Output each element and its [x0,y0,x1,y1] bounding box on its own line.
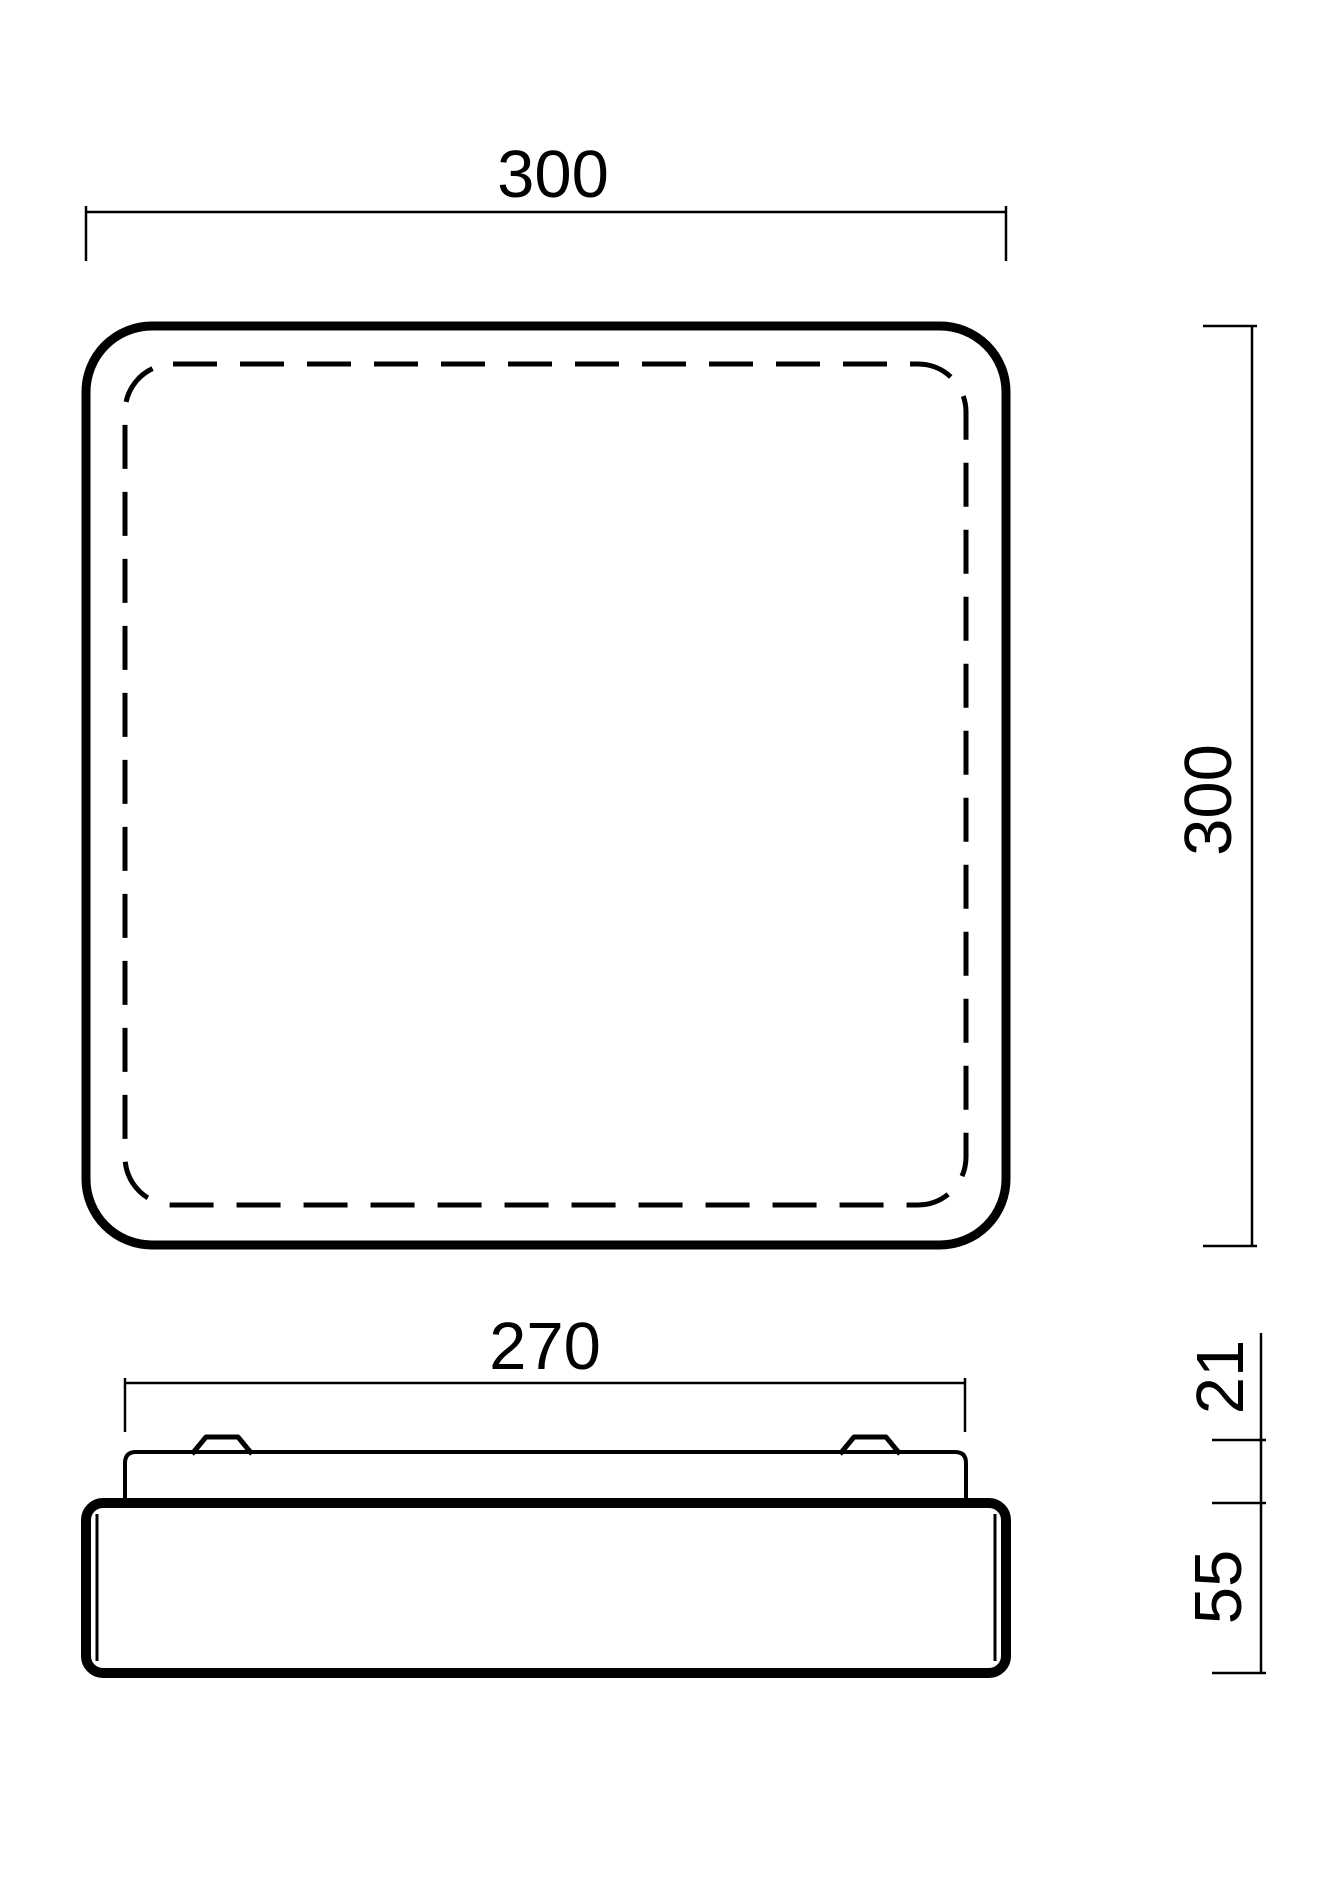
dim-side-width-label: 270 [489,1309,601,1384]
dim-top-width-label: 300 [497,137,609,212]
dim-clip-offset-label: 21 [1183,1340,1258,1415]
dim-base-height-label: 55 [1181,1550,1256,1625]
sheet-background [0,0,1343,1900]
dim-right-height-label: 300 [1171,744,1246,856]
drawing-sheet: 300 300 270 [0,0,1343,1900]
technical-drawing-canvas: 300 300 270 [0,0,1343,1900]
